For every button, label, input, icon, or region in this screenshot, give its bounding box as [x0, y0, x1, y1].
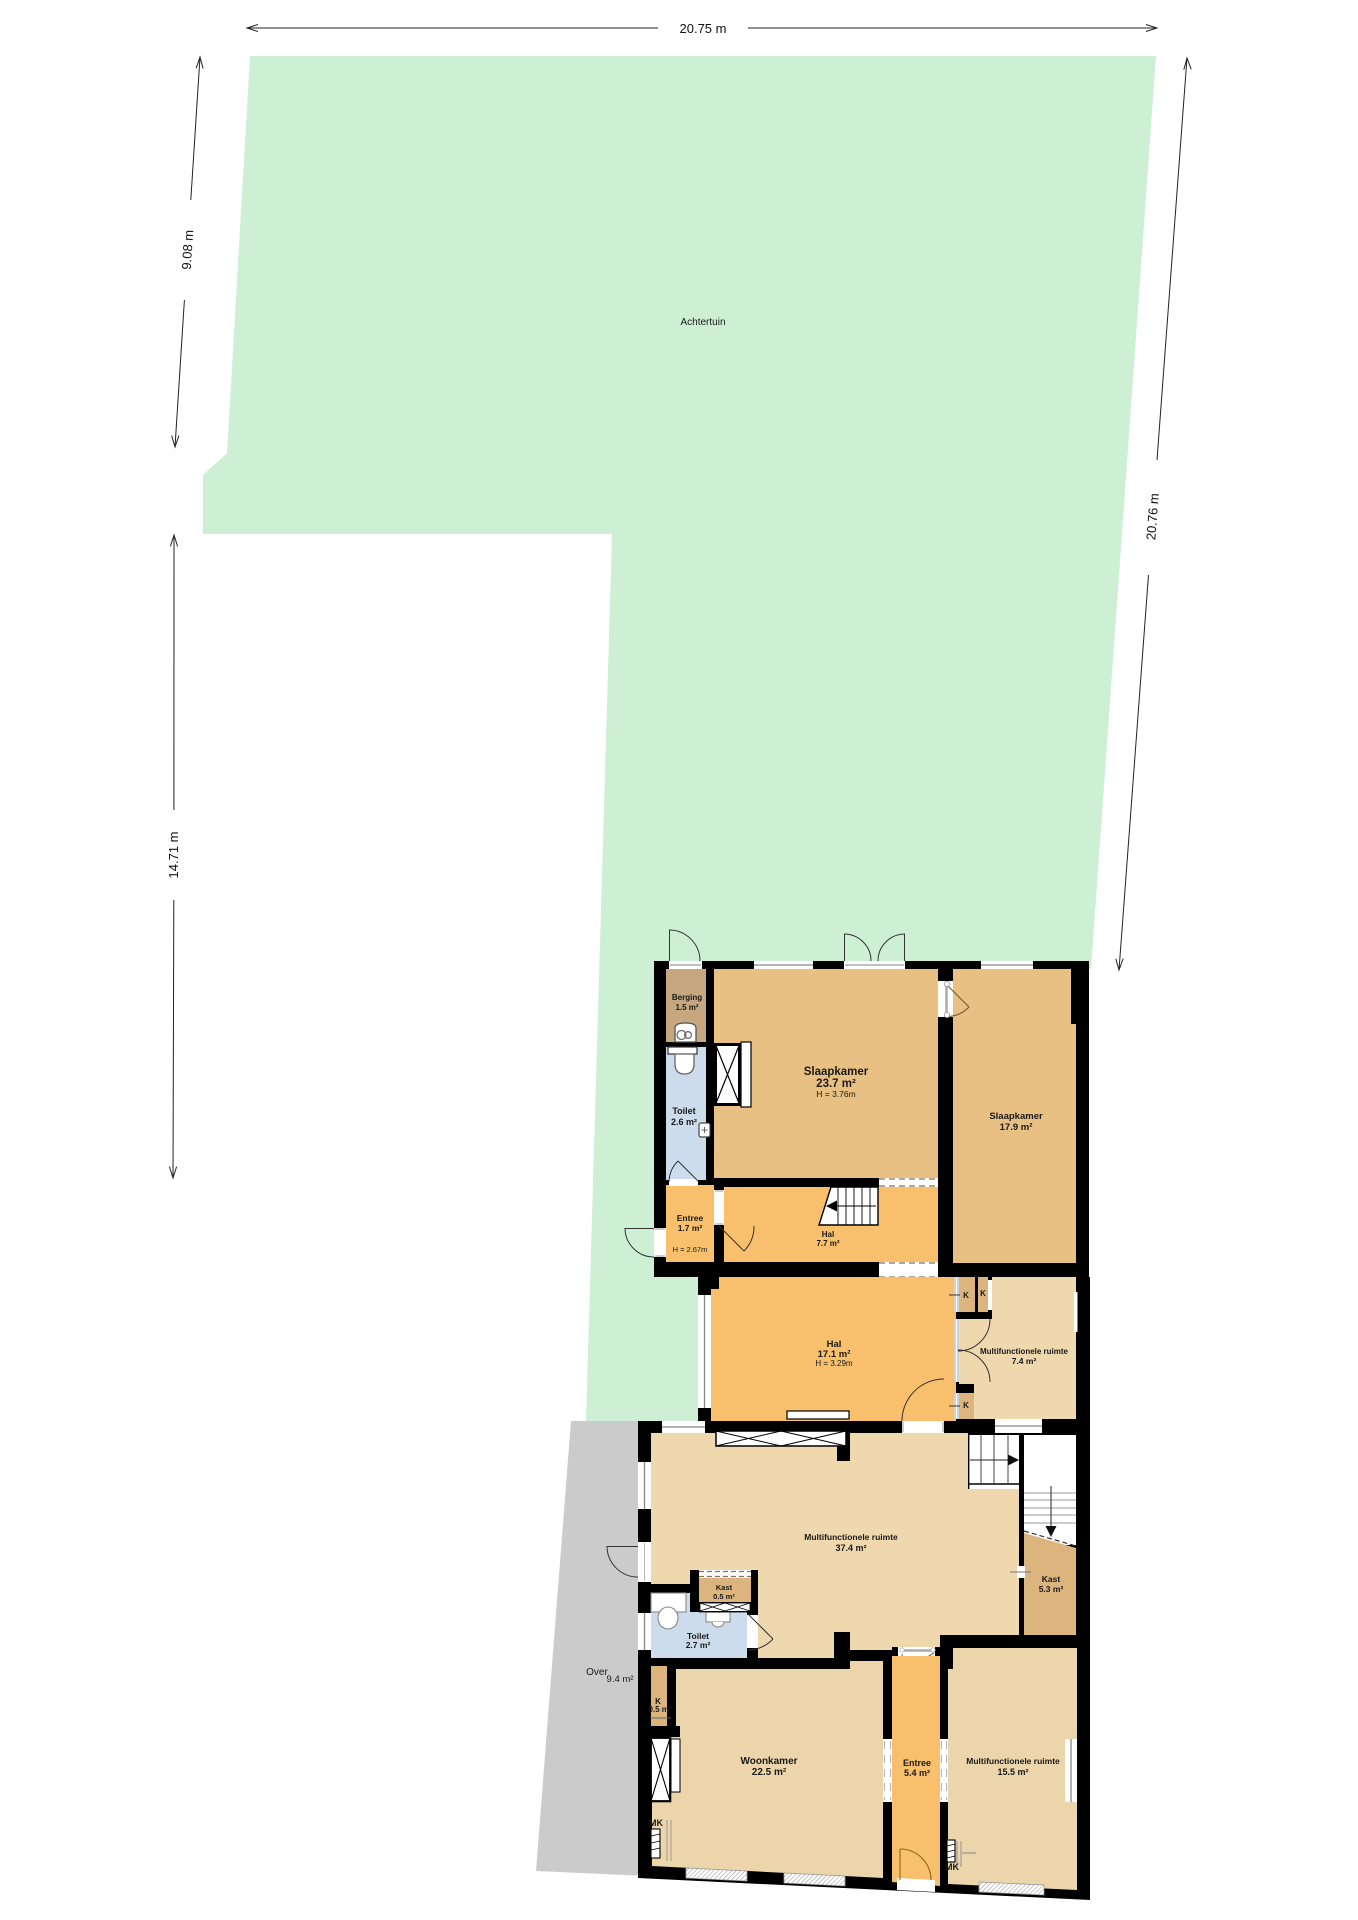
- svg-text:Kast: Kast: [1042, 1574, 1061, 1584]
- svg-text:Berging: Berging: [672, 993, 702, 1002]
- svg-text:Hal: Hal: [822, 1230, 834, 1239]
- svg-text:Multifunctionele ruimte: Multifunctionele ruimte: [966, 1756, 1060, 1766]
- svg-text:Woonkamer: Woonkamer: [740, 1756, 797, 1767]
- svg-text:Slaapkamer: Slaapkamer: [804, 1066, 869, 1078]
- svg-text:H = 3.76m: H = 3.76m: [816, 1089, 855, 1099]
- svg-text:1.7 m²: 1.7 m²: [678, 1223, 703, 1233]
- svg-text:2.6 m²: 2.6 m²: [671, 1117, 697, 1127]
- svg-text:H = 2.67m: H = 2.67m: [673, 1245, 708, 1254]
- svg-text:Multifunctionele ruimte: Multifunctionele ruimte: [804, 1532, 898, 1542]
- svg-text:K: K: [980, 1289, 986, 1298]
- svg-text:9.08 m: 9.08 m: [179, 229, 197, 270]
- svg-text:0.5 m²: 0.5 m²: [648, 1705, 671, 1714]
- svg-text:5.4 m²: 5.4 m²: [904, 1768, 930, 1778]
- svg-text:14.71 m: 14.71 m: [166, 832, 181, 879]
- svg-text:7.7 m²: 7.7 m²: [816, 1239, 839, 1248]
- svg-text:7.4 m²: 7.4 m²: [1012, 1356, 1037, 1366]
- svg-text:22.5 m²: 22.5 m²: [752, 1767, 787, 1778]
- svg-text:0.5 m²: 0.5 m²: [713, 1592, 735, 1601]
- svg-text:Slaapkamer: Slaapkamer: [989, 1111, 1043, 1122]
- svg-text:2.7 m²: 2.7 m²: [686, 1640, 711, 1650]
- svg-text:Kast: Kast: [716, 1583, 733, 1592]
- svg-text:Entree: Entree: [677, 1213, 704, 1223]
- svg-text:20.75 m: 20.75 m: [680, 21, 727, 36]
- svg-text:Multifunctionele ruimte: Multifunctionele ruimte: [980, 1347, 1069, 1356]
- svg-text:1.5 m²: 1.5 m²: [675, 1003, 698, 1012]
- svg-text:K: K: [963, 1291, 969, 1300]
- svg-text:MK: MK: [649, 1818, 663, 1828]
- svg-text:Achtertuin: Achtertuin: [680, 317, 725, 328]
- svg-text:Entree: Entree: [903, 1758, 931, 1768]
- svg-text:H = 3.29m: H = 3.29m: [815, 1359, 852, 1368]
- svg-text:17.9 m²: 17.9 m²: [1000, 1122, 1033, 1133]
- svg-text:15.5 m²: 15.5 m²: [997, 1767, 1028, 1777]
- svg-text:Toilet: Toilet: [672, 1106, 695, 1116]
- svg-text:9.4 m²: 9.4 m²: [607, 1674, 634, 1685]
- svg-text:37.4 m²: 37.4 m²: [835, 1543, 866, 1553]
- svg-text:K: K: [963, 1401, 969, 1410]
- svg-text:5.3 m²: 5.3 m²: [1039, 1584, 1064, 1594]
- svg-text:MK: MK: [945, 1862, 959, 1872]
- svg-text:Over: Over: [586, 1667, 608, 1678]
